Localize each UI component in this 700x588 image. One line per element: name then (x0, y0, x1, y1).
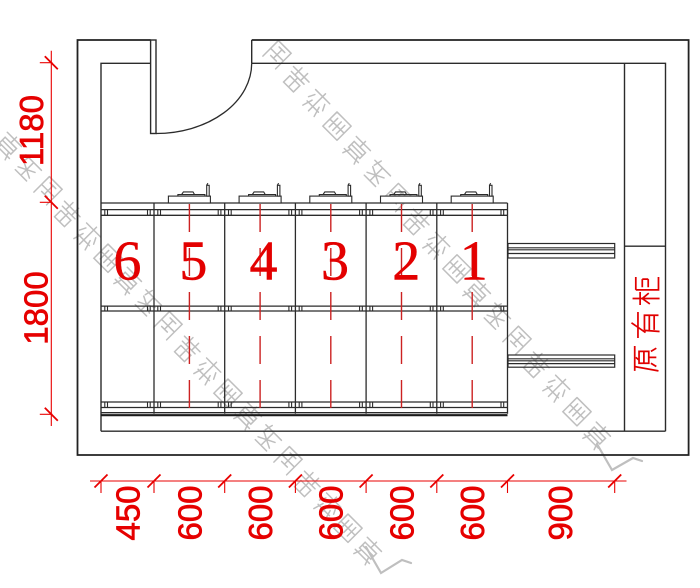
svg-text:6: 6 (113, 230, 141, 292)
svg-text:3: 3 (321, 230, 349, 292)
svg-text:600: 600 (313, 485, 350, 540)
svg-text:1800: 1800 (18, 271, 55, 344)
svg-text:600: 600 (172, 485, 209, 540)
svg-text:600: 600 (242, 485, 279, 540)
svg-text:600: 600 (383, 485, 420, 540)
svg-text:1: 1 (460, 230, 488, 292)
svg-text:600: 600 (454, 485, 491, 540)
svg-text:5: 5 (179, 230, 207, 292)
svg-text:900: 900 (542, 485, 579, 540)
svg-text:450: 450 (110, 485, 147, 540)
svg-text:1180: 1180 (13, 95, 50, 166)
svg-text:2: 2 (392, 230, 420, 292)
svg-text:4: 4 (250, 230, 278, 292)
